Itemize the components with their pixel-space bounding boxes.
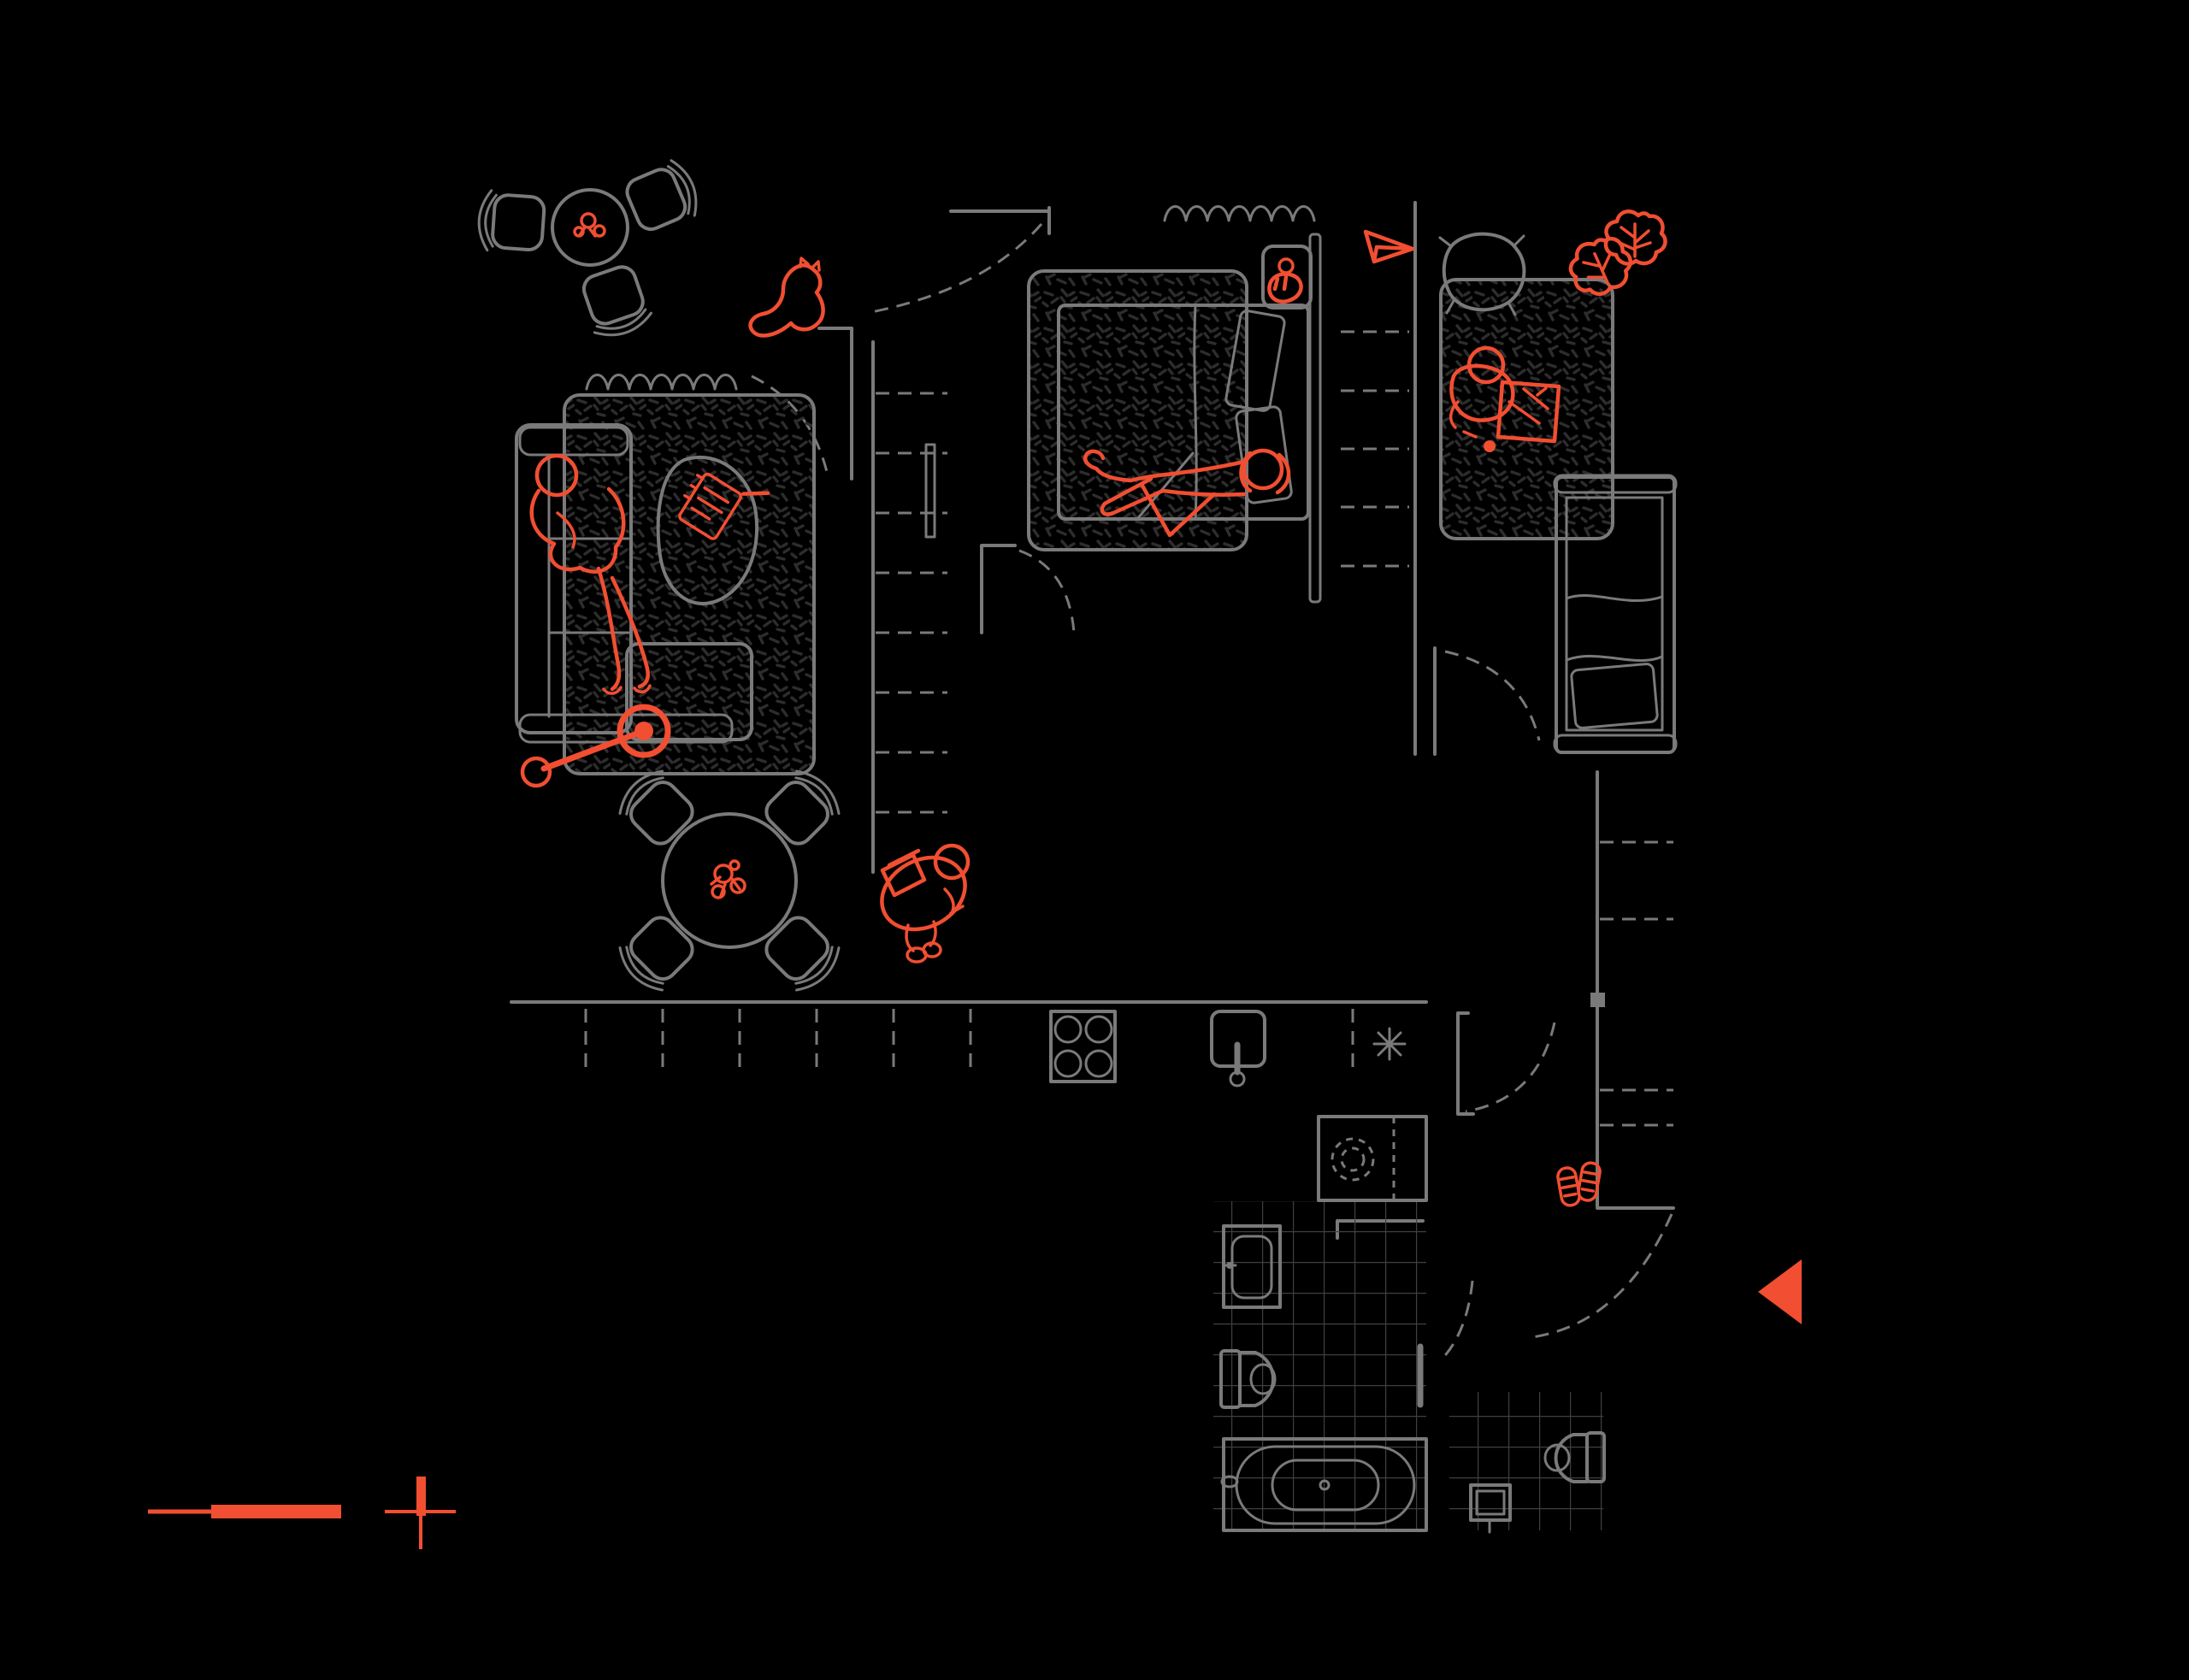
floor-textures: [564, 271, 1613, 1530]
door-arc-kidsroom: [1445, 651, 1539, 740]
scale-bar: [148, 1505, 341, 1518]
wall-bathroom-door-jamb: [1458, 1013, 1473, 1114]
kids-pillow: [1571, 663, 1658, 728]
washing-machine: [1319, 1117, 1426, 1200]
light-asterisk-icon: [1374, 1029, 1405, 1059]
entrance-arrow-icon: [1758, 1259, 1802, 1324]
door-arc-entrance: [1532, 1214, 1672, 1337]
kitchen-sink: [1212, 1011, 1265, 1086]
wall-hall-right: [1597, 772, 1673, 1208]
door-arc-bedroom: [867, 224, 1041, 313]
wall-bedroom-top: [951, 208, 1049, 233]
flowers-dining-table: [711, 861, 745, 898]
door-arc-hall: [1019, 551, 1074, 633]
rug-kids: [1441, 280, 1613, 539]
tiles-bathroom: [1213, 1201, 1426, 1530]
cat: [751, 258, 823, 336]
curtain-living: [587, 375, 736, 390]
door-arc-wc: [1442, 1281, 1472, 1359]
wardrobe-shelves-bedroom: [1341, 332, 1409, 566]
wall-living-door-jamb: [819, 328, 852, 479]
cafe-table: [477, 156, 704, 342]
wall-hall-door-jamb: [982, 545, 1015, 633]
stove: [1051, 1011, 1115, 1082]
slippers: [1556, 1162, 1601, 1207]
door-arc-bathroom: [1466, 1023, 1555, 1111]
monstera-plant: [1563, 211, 1666, 302]
closet-shelves-kids: [1600, 842, 1673, 919]
rug-bedroom: [1029, 271, 1247, 550]
floor-plan: [0, 0, 2189, 1680]
reference-cross-icon: [385, 1477, 456, 1549]
closet-mirror: [926, 445, 935, 537]
wall-pier-block: [1590, 993, 1605, 1007]
person-walking-with-bags: [870, 844, 978, 962]
curtain-bedroom: [1165, 207, 1314, 221]
closet-shelves-left: [876, 393, 947, 812]
paper-plane: [1366, 232, 1413, 262]
flowers-cafe-table: [575, 214, 605, 236]
cup-and-croissant: [1269, 259, 1301, 302]
kitchen: [1051, 1011, 1405, 1086]
closet-shelves-hall: [1600, 1090, 1673, 1125]
